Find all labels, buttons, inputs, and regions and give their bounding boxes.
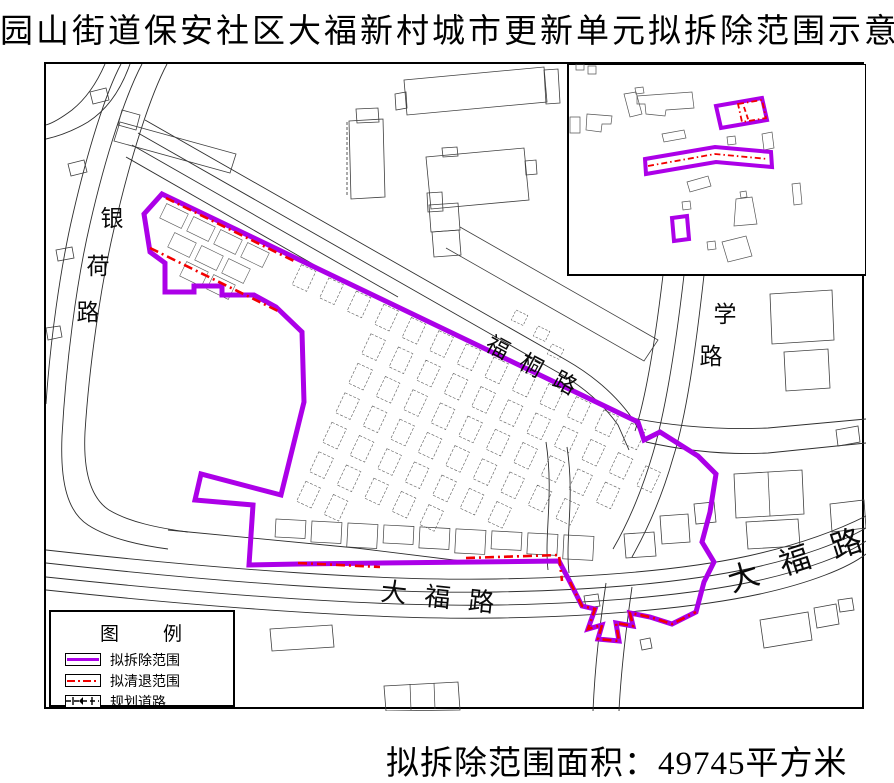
village-house (405, 462, 429, 489)
building-outline (760, 612, 812, 648)
village-house (514, 442, 538, 469)
village-house (297, 481, 321, 508)
road-line (132, 145, 398, 297)
building-outline (768, 472, 770, 516)
village-house (376, 376, 400, 403)
building-outline (533, 326, 549, 341)
road-label-xue: 学 (714, 302, 737, 327)
building-outline (527, 533, 558, 556)
village-house (554, 426, 578, 453)
village-house (350, 435, 374, 462)
village-house (460, 488, 484, 515)
village-house (336, 393, 360, 420)
building-outline (270, 625, 334, 651)
building-outline (404, 67, 547, 115)
road-label-futong: 福桐路 (482, 331, 594, 407)
red-dashdot-line (67, 680, 99, 683)
building-outline (836, 426, 860, 446)
village-house (323, 422, 347, 449)
village-house (418, 432, 442, 459)
village-house (363, 406, 387, 433)
village-house (609, 453, 633, 480)
building-outline (90, 88, 109, 104)
village-house (389, 347, 413, 374)
building-outline (195, 246, 224, 271)
village-house (392, 491, 416, 518)
village-house (431, 403, 455, 430)
village-house (433, 475, 457, 502)
map-frame: 福桐路 大福路 大福路 银荷路学路 图 例 拟拆除范围 拟清退范围 (44, 62, 864, 709)
road-line (632, 275, 704, 557)
road-line (632, 418, 866, 429)
village-house (595, 410, 619, 437)
inset-frame (568, 64, 866, 275)
village-house (486, 429, 510, 456)
village-house (473, 459, 497, 486)
building-outline (187, 217, 216, 242)
village-house (365, 478, 389, 505)
building-outline (770, 290, 834, 344)
planned-road-glyph (66, 696, 99, 706)
village-house (310, 452, 334, 479)
road-line (613, 275, 684, 549)
building-outline (46, 326, 62, 340)
building-outline (410, 684, 411, 710)
village-house (596, 482, 620, 509)
building-outline (349, 119, 385, 199)
road-line (619, 587, 632, 711)
building-outline (525, 160, 537, 175)
building-outline (660, 514, 690, 544)
road-label-yinhe: 银 (101, 206, 124, 231)
village-grid-layer (292, 265, 660, 532)
legend-item-demolition: 拟拆除范围 (65, 652, 233, 667)
map-legend: 图 例 拟拆除范围 拟清退范围 规划道路 (49, 610, 235, 707)
legend-title: 图 例 (51, 619, 233, 646)
building-outline (118, 110, 140, 130)
village-house (391, 419, 415, 446)
building-outline (426, 148, 529, 209)
building-outline (275, 519, 306, 539)
building-outline (434, 683, 435, 709)
legend-label: 拟清退范围 (110, 671, 180, 691)
village-house (444, 373, 468, 400)
village-house (324, 494, 348, 521)
village-house (349, 363, 373, 390)
village-house (499, 400, 523, 427)
building-outline (491, 531, 522, 551)
village-house (501, 472, 525, 499)
building-outline (241, 243, 270, 268)
village-house (488, 501, 512, 528)
road-label-xue: 路 (700, 344, 723, 369)
building-outline (222, 259, 251, 284)
planned-road-symbol (65, 695, 101, 708)
building-outline (784, 349, 830, 391)
building-outline (429, 203, 460, 232)
road-line (85, 64, 188, 532)
area-note: 拟拆除范围面积：49745平方米 (386, 736, 848, 783)
village-house (404, 390, 428, 417)
building-outline (432, 230, 461, 257)
building-outline (384, 682, 460, 711)
page-title: 园山街道保安社区大福新村城市更新单元拟拆除范围示意图 (0, 4, 894, 52)
village-house (527, 413, 551, 440)
purple-line (67, 658, 99, 661)
road-line (567, 447, 570, 573)
building-outline (563, 535, 594, 561)
road-label-yinhe: 荷 (87, 254, 110, 279)
inset-map (568, 64, 866, 275)
building-outline (814, 604, 839, 628)
legend-item-clearance: 拟清退范围 (65, 673, 233, 688)
village-house (362, 334, 386, 361)
village-house (459, 416, 483, 443)
village-house (417, 360, 441, 387)
village-house (337, 465, 361, 492)
road-label-yinhe: 路 (77, 300, 100, 325)
legend-label: 拟拆除范围 (110, 650, 180, 670)
building-outline (168, 233, 197, 258)
building-outline (114, 122, 236, 173)
road-label-dafu-bottom: 大福路 (379, 577, 513, 620)
building-outline (455, 529, 486, 555)
road-line (46, 64, 121, 404)
village-house (378, 449, 402, 476)
building-outline (640, 638, 652, 650)
building-outline (838, 598, 854, 612)
clearance-boundary-line (150, 248, 278, 311)
village-house (569, 469, 593, 496)
demolition-boundary-symbol (65, 653, 101, 666)
building-outline (347, 523, 378, 549)
village-house (446, 446, 470, 473)
clearance-boundary-symbol (65, 674, 101, 687)
building-outline (624, 532, 656, 558)
building-outline (311, 521, 342, 544)
village-house (582, 439, 606, 466)
legend-label: 规划道路 (110, 692, 166, 712)
village-house (556, 498, 580, 525)
legend-item-planned-road: 规划道路 (65, 694, 233, 709)
village-house (472, 387, 496, 414)
village-house (430, 331, 454, 358)
road-line (46, 64, 130, 139)
village-house (457, 344, 481, 371)
building-outline (383, 525, 414, 545)
village-house (541, 456, 565, 483)
village-house (637, 466, 661, 493)
road-line (168, 530, 478, 563)
building-outline (511, 310, 527, 325)
